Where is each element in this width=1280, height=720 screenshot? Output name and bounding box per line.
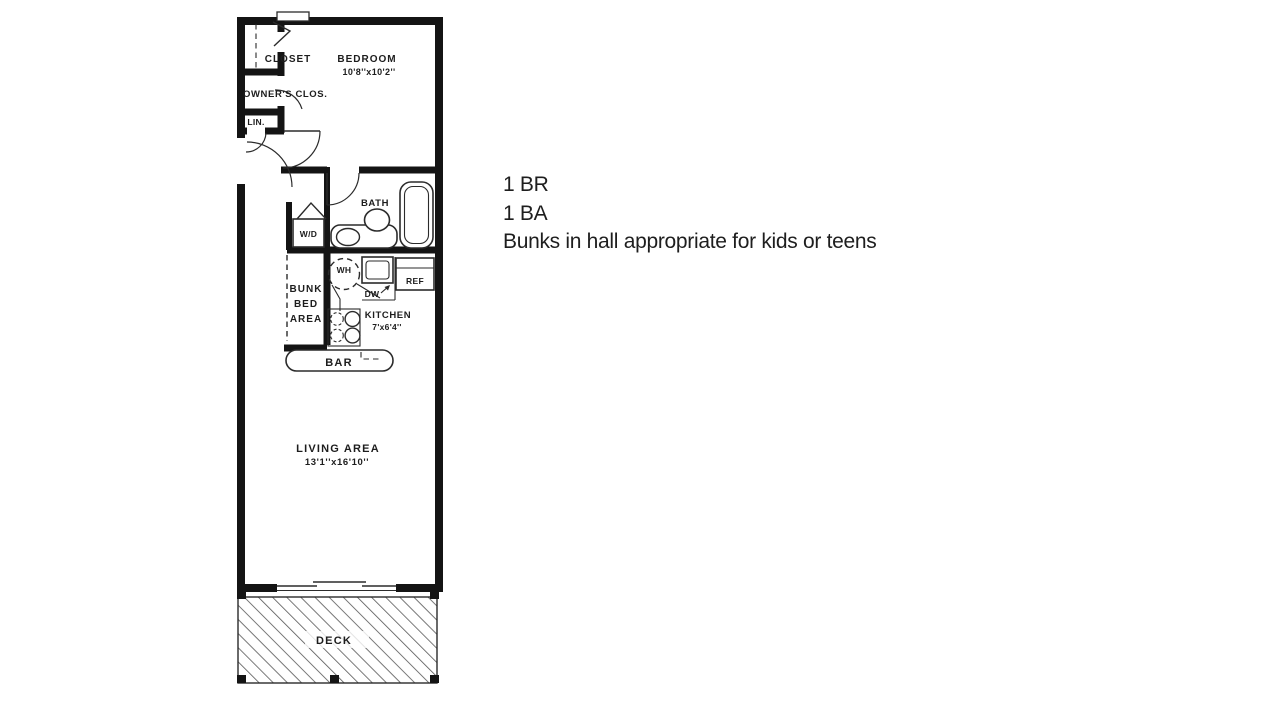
deck-label: DECK bbox=[316, 635, 352, 647]
page: CLOSET BEDROOM 10'8''x10'2'' OWNER'S CLO… bbox=[0, 0, 1280, 720]
unit-description-line-bunks: Bunks in hall appropriate for kids or te… bbox=[503, 228, 876, 257]
bedroom-window bbox=[277, 12, 309, 21]
bunk-label-2: BED bbox=[294, 299, 318, 310]
sliding-glass-door bbox=[277, 582, 396, 591]
deck-post-bottom-center bbox=[330, 675, 339, 683]
wd-bifold-door bbox=[297, 203, 326, 219]
dishwasher-label: DW bbox=[365, 289, 380, 299]
floor-plan: CLOSET BEDROOM 10'8''x10'2'' OWNER'S CLO… bbox=[0, 0, 1280, 720]
kitchen-label: KITCHEN bbox=[365, 310, 411, 321]
linen-label: LIN. bbox=[247, 117, 264, 127]
deck-post-bottom-right bbox=[430, 675, 439, 683]
unit-description: 1 BR 1 BA Bunks in hall appropriate for … bbox=[503, 171, 876, 257]
closet-label: CLOSET bbox=[265, 54, 312, 65]
bath-label: BATH bbox=[361, 198, 389, 209]
bar-label: BAR bbox=[325, 357, 352, 369]
stove bbox=[328, 309, 360, 346]
bath-door-arc bbox=[327, 173, 359, 205]
entry-opening bbox=[234, 138, 245, 184]
deck-post-top-right bbox=[430, 592, 439, 599]
bunk-label-1: BUNK bbox=[290, 284, 323, 295]
bedroom-door-arc bbox=[283, 131, 320, 168]
bedroom-dims: 10'8''x10'2'' bbox=[342, 67, 395, 77]
deck-post-top-left bbox=[237, 592, 246, 599]
bath-fixtures bbox=[331, 182, 433, 248]
unit-description-line-br: 1 BR bbox=[503, 171, 876, 200]
owners-closet-label: OWNER'S CLOS. bbox=[243, 89, 327, 100]
toilet bbox=[365, 209, 390, 231]
bedroom-label: BEDROOM bbox=[337, 54, 396, 65]
unit-description-line-ba: 1 BA bbox=[503, 200, 876, 229]
kitchen-dims: 7'x6'4'' bbox=[372, 322, 401, 332]
washer-dryer-label: W/D bbox=[300, 229, 317, 239]
refrigerator-label: REF bbox=[406, 276, 424, 286]
bunk-label-3: AREA bbox=[290, 314, 322, 325]
water-heater-label: WH bbox=[337, 265, 352, 275]
living-area-label: LIVING AREA bbox=[296, 443, 380, 455]
deck-post-bottom-left bbox=[237, 675, 246, 683]
bath-vanity-counter bbox=[331, 225, 397, 248]
living-area-dims: 13'1''x16'10'' bbox=[305, 457, 369, 468]
entry-door-arc bbox=[247, 142, 292, 187]
